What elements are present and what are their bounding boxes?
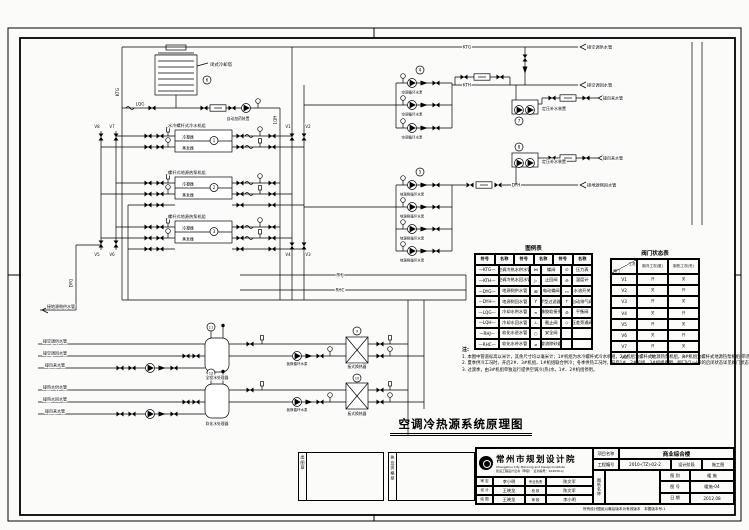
institute-name-en: Changzhou City Planning and Design Insti… [496, 465, 576, 469]
legend-symbol-name: 橡胶软接头 [541, 307, 561, 318]
sheet-meta-value: 暖施-04 [690, 481, 734, 492]
legend-pipe-name: 冷却水供水管 [499, 307, 530, 318]
chiller-3-tag: 3 [213, 229, 216, 234]
role-label: 审 定 [476, 477, 493, 486]
sheet-meta-row: 日 期 2012.08 [660, 493, 734, 504]
legend-symbol-icon: ⊥ [530, 318, 541, 329]
pump-group-a [304, 74, 452, 133]
legend-row: —DYG— 地源侧供水管 ⊠ 电动蝶阀 ▭ 水流开关 [475, 286, 592, 297]
chiller-1-label: 水冷螺杆式冷水机组 [168, 122, 206, 129]
sheet-name-label: 图纸名称 [596, 478, 602, 496]
arrow-label-ktg: 接空调供水管 [587, 44, 612, 51]
legend-symbol-icon: ⊖ [561, 275, 572, 286]
valve-state-heating: 关 [668, 296, 699, 307]
legend-row: —LQH— 冷却水回水管 ⊥ 截止阀 ◇ 压差旁通阀 [475, 318, 592, 329]
pump-b4-label: 地源侧循环水泵 [400, 258, 425, 263]
plate-hx-section [229, 300, 424, 435]
role-label: 设 计 [476, 486, 493, 495]
legend-row: —KTH— 空调冷热水回水管 ▷ 止回阀 ⊖ 温度计 [475, 275, 592, 286]
pipe-label-ktg-riser: KTG [115, 88, 120, 96]
legend-symbol-name: 温度计 [572, 275, 592, 286]
pump-a2-label: 空调循环水泵 [402, 112, 423, 117]
release-stamp-box: 出图章 [298, 452, 384, 501]
arrow-label-tap-a: 接自来水管 [603, 95, 623, 101]
corner-valve-label: 阀门 [613, 268, 620, 273]
valve-id: V3 [611, 296, 637, 307]
legend-header-cell: 符号 [514, 254, 534, 265]
chiller-1 [101, 127, 304, 152]
release-stamp-label: 出图章 [299, 453, 307, 500]
people-row: 绘 图 王晓龙 审 核 李小明 [476, 495, 593, 504]
person-name: 陈文军 [546, 486, 593, 495]
pipe-label-lqh: LQH [273, 116, 278, 125]
valve-id: V5 [611, 319, 637, 330]
sheet-meta-row: 图 别 暖 施 [660, 470, 734, 481]
title-block-footnote: 所有设计图纸以最后版本为有效版本 本图版本号:1 [583, 507, 666, 512]
institute-logo [479, 456, 493, 470]
legend-symbol-icon: ○ [530, 328, 541, 339]
valve-label-v6: V6 [109, 252, 115, 257]
valve-label-v4: V4 [285, 252, 291, 257]
valve-table-row: V5 开 关 [611, 319, 699, 330]
valve-label-v3: V3 [305, 252, 311, 257]
legend-pipe-code: —LQG— [475, 307, 499, 318]
legend-header-cell: 名称 [573, 254, 593, 265]
cooling-season-header: 制冷工况(夏) [637, 259, 668, 274]
legend-symbol-name: 止回阀 [541, 275, 561, 286]
notes-block: 注: 1. 本图中管道标高以米计，其余尺寸均以毫米计；1#机组为水冷螺杆式冷水机… [462, 347, 737, 375]
legend-row: —LQG— 冷却水供水管 ≈ 橡胶软接头 ⊘ 平衡阀 [475, 307, 592, 318]
pump-b1-label: 地源侧循环水泵 [400, 192, 425, 197]
hx-pump-a-label: 板换循环水泵 [287, 361, 308, 366]
legend-symbol-name: 平衡阀 [572, 307, 592, 318]
legend-symbol-name: 截止阀 [541, 318, 561, 329]
tank-a-label: 全程水处理器 [206, 375, 229, 380]
legend-symbol-name: 压力表 [572, 265, 592, 276]
legend-table: 图例表 符号名称符号名称符号名称 —KTG— 空调冷热水供水管 ⋈ 蝶阀 ⊙ 压… [474, 244, 593, 350]
institute-certificate: 建设工程设计证书（甲级） 证书编号：102030-sj [496, 469, 576, 473]
project-number-value: 2010-(TZ)-02-2 [619, 459, 671, 470]
branch-label-1: 接空调供水管 [43, 338, 67, 344]
pressurization-unit-b [512, 153, 604, 185]
sheet-meta-label: 图 号 [660, 481, 690, 492]
valve-label-v8: V8 [94, 124, 100, 129]
press-unit-a-label: 定压补水装置 [542, 105, 566, 111]
legend-header-cell: 名称 [495, 254, 515, 265]
legend-symbol-name: 压差旁通阀 [572, 318, 592, 329]
legend-pipe-name: 空调冷热水回水管 [499, 275, 530, 286]
title-block: 常州市规划设计院 Changzhou City Planning and Des… [475, 447, 735, 505]
chiller-2-tag: 2 [213, 185, 216, 190]
valve-state-cooling: 开 [637, 296, 668, 307]
legend-header-cell: 名称 [534, 254, 554, 265]
legend-symbol-icon: ⊠ [530, 286, 541, 297]
pipe-label-ktg: KTG [463, 45, 471, 50]
valve-state-cooling: 关 [637, 330, 668, 341]
softened-water-lines [122, 275, 466, 300]
legend-symbol-icon: ⊙ [561, 265, 572, 276]
pump-group-b-tag: 5 [419, 170, 422, 175]
valve-table-row: V1 开 关 [611, 274, 699, 285]
legend-symbol-name [572, 328, 592, 339]
left-risers [40, 47, 128, 313]
legend-symbol-icon: ⋈ [530, 265, 541, 276]
branch-label-3: 接自来水管 [45, 362, 65, 368]
legend-row: —DYH— 地源侧回水管 Y Y型过滤器 ↑ 自动排气阀 [475, 296, 592, 307]
dosing-unit-label: 自动加药装置 [227, 116, 250, 121]
press-unit-a-tag: 7 [518, 119, 521, 124]
chiller-2 [101, 174, 304, 208]
role-label: 专业负责 [525, 477, 546, 486]
design-stage-label: 设计阶段 [671, 459, 702, 470]
pipe-label-lqg: LQG [136, 102, 145, 107]
project-name-value: 商业综合楼 [619, 448, 734, 459]
qualification-stamp-label: 执业资格章 [389, 453, 397, 500]
legend-pipe-code: —DYG— [475, 286, 499, 297]
valve-id: V1 [611, 274, 637, 285]
sheet-meta-row: 图 号 暖施-04 [660, 481, 734, 492]
chiller-2-label: 螺杆式地源热泵机组 [168, 169, 206, 176]
drawing-title: 空调冷热源系统原理图 [390, 416, 532, 436]
legend-symbol-name: 蝶阀 [541, 265, 561, 276]
person-name: 陈文军 [546, 477, 593, 486]
sheet-meta-value: 暖 施 [690, 470, 734, 481]
legend-symbol-icon: ≈ [530, 307, 541, 318]
chiller-1-tag: 1 [213, 138, 216, 143]
corner-season-label: 工况 [628, 261, 635, 266]
legend-symbol-icon: Y [530, 296, 541, 307]
cooling-tower-label: 闭式冷却塔 [210, 61, 233, 68]
sheet-meta-value: 2012.08 [690, 493, 734, 504]
legend-header-cell: 符号 [553, 254, 573, 265]
legend-pipe-name: 空调冷热水供水管 [499, 265, 530, 276]
legend-symbol-icon: ▷ [530, 275, 541, 286]
legend-pipe-code: —KTH— [475, 275, 499, 286]
tank-a-tag: 11 [209, 326, 214, 330]
legend-symbol-icon: ⊘ [561, 307, 572, 318]
people-row: 设 计 王晓龙 校 核 陈文军 [476, 486, 593, 495]
right-risers [290, 47, 307, 300]
person-name: 李小明 [546, 495, 593, 504]
hx-b-tag: 10 [355, 377, 360, 381]
valve-state-heating: 开 [668, 330, 699, 341]
project-name-label: 项目名称 [593, 448, 619, 459]
person-name: 王晓龙 [493, 486, 525, 495]
arrow-label-kth: 接空调回水管 [587, 82, 612, 89]
person-name: 王晓龙 [493, 495, 525, 504]
legend-symbol-name: 电动蝶阀 [541, 286, 561, 297]
heating-season-header: 制热工况(冬) [668, 259, 699, 274]
legend-symbol-name: 水流开关 [572, 286, 592, 297]
condenser-water-piping [122, 99, 280, 300]
valve-state-cooling: 关 [637, 285, 668, 296]
legend-symbol-name: 安全阀 [541, 328, 561, 339]
equipment-tag-number: 6 [206, 78, 209, 83]
legend-row: —KTG— 空调冷热水供水管 ⋈ 蝶阀 ⊙ 压力表 [475, 265, 592, 276]
person-name: 李小明 [493, 477, 525, 486]
pump-a1-label: 空调循环水泵 [402, 90, 423, 95]
pipe-label-rhc: RHC [336, 288, 345, 293]
valve-table-row: V2 关 开 [611, 285, 699, 296]
pipe-label-kth: KTH [463, 83, 471, 88]
legend-pipe-name: 冷却水回水管 [499, 318, 530, 329]
valve-label-v7: V7 [109, 124, 115, 129]
note-item: 3. 过渡季，由3#机组单独运行提供空调冷(热)水，1#、2#机组停用。 [462, 368, 737, 375]
valve-id: V4 [611, 308, 637, 319]
pump-b3-label: 地源侧循环水泵 [400, 236, 425, 241]
legend-row: —RHJ— 软化水进水管 ○ 安全阀 [475, 328, 592, 339]
chiller-3 [101, 218, 304, 252]
role-label: 校 核 [525, 486, 546, 495]
project-number-label: 工程编号 [593, 459, 619, 470]
role-label: 审 核 [525, 495, 546, 504]
valve-state-heating: 开 [668, 285, 699, 296]
valve-label-v1: V1 [285, 124, 291, 129]
legend-pipe-code: —DYH— [475, 296, 499, 307]
role-label: 绘 图 [476, 495, 493, 504]
legend-pipe-name: 软化水进水管 [499, 328, 530, 339]
right-edge-risers [692, 42, 702, 225]
chiller-3-label: 螺杆式地源热泵机组 [168, 213, 206, 220]
legend-pipe-code: —RHJ— [475, 328, 499, 339]
arrow-label-dyg: 接地源侧供水管 [47, 303, 75, 309]
pump-b2-label: 地源侧循环水泵 [400, 214, 425, 219]
chiller-3-condenser-label: 冷凝器 [182, 226, 194, 231]
arrow-label-tap-b: 接自来水管 [603, 155, 623, 161]
chiller-2-condenser-label: 冷凝器 [182, 182, 194, 187]
legend-header-cell: 符号 [475, 254, 495, 265]
press-unit-b-label: 定压补水装置 [542, 158, 566, 164]
legend-title: 图例表 [474, 244, 593, 252]
valve-table-corner: 工况 阀门 [611, 259, 637, 274]
chiller-1-condenser-label: 冷凝器 [182, 135, 194, 140]
valve-table-row: V3 开 关 [611, 296, 699, 307]
valve-state-heating: 关 [668, 274, 699, 285]
valve-state-heating: 开 [668, 308, 699, 319]
branch-label-6: 接自来水管 [45, 408, 65, 414]
legend-symbol-name: 自动排气阀 [572, 296, 592, 307]
hx-pump-b-label: 板换循环水泵 [287, 407, 308, 412]
cooling-tower [155, 45, 208, 108]
legend-symbol-icon: ↑ [561, 296, 572, 307]
tank-b-label: 软化水处理器 [206, 421, 229, 426]
valve-id: V2 [611, 285, 637, 296]
valve-table-title: 阀门状态表 [610, 249, 700, 257]
notes-label: 注: [462, 347, 737, 355]
valve-label-v5: V5 [94, 252, 100, 257]
chiller-1-evaporator-label: 蒸发器 [182, 146, 194, 151]
legend-symbol-icon [561, 328, 572, 339]
institute-name: 常州市规划设计院 [496, 453, 576, 465]
hx-a-label: 板式换热器 [348, 364, 367, 369]
press-unit-b-tag: 8 [518, 145, 521, 150]
hx-b-label: 板式换热器 [348, 411, 367, 416]
valve-state-heating: 关 [668, 319, 699, 330]
valve-state-cooling: 关 [637, 308, 668, 319]
pipe-label-dyg: DYG [69, 279, 74, 288]
legend-pipe-name: 地源侧供水管 [499, 286, 530, 297]
valve-table-row: V6 关 开 [611, 330, 699, 341]
sheet-meta-label: 图 别 [660, 470, 690, 481]
legend-pipe-code: —KTG— [475, 265, 499, 276]
pipe-label-rhj: RHJ [336, 273, 343, 278]
branch-label-5: 接热水回水管 [43, 396, 67, 402]
legend-symbol-icon: ◇ [561, 318, 572, 329]
chiller-2-evaporator-label: 蒸发器 [182, 193, 194, 198]
design-stage-value: 施工图 [702, 459, 734, 470]
pump-a3-label: 空调循环水泵 [402, 135, 423, 140]
valve-id: V6 [611, 330, 637, 341]
branch-label-2: 接空调回水管 [43, 350, 67, 356]
sheet-name-area [605, 470, 660, 504]
legend-symbol-icon: ▭ [561, 286, 572, 297]
qualification-stamp-box: 执业资格章 [388, 452, 475, 501]
valve-table-row: V4 关 开 [611, 308, 699, 319]
arrow-label-dyh: 接地源侧回水管 [587, 182, 616, 189]
pump-group-a-tag: 4 [419, 68, 422, 73]
sheet-meta-label: 日 期 [660, 493, 690, 504]
valve-state-cooling: 开 [637, 274, 668, 285]
valve-label-v2: V2 [305, 124, 311, 129]
people-row: 审 定 李小明 专业负责 陈文军 [476, 477, 593, 486]
legend-pipe-code: —LQH— [475, 318, 499, 329]
legend-symbol-name: Y型过滤器 [541, 296, 561, 307]
valve-state-cooling: 开 [637, 319, 668, 330]
branch-label-4: 接热水供水管 [43, 384, 67, 390]
legend-pipe-name: 地源侧回水管 [499, 296, 530, 307]
chiller-3-evaporator-label: 蒸发器 [182, 237, 194, 242]
